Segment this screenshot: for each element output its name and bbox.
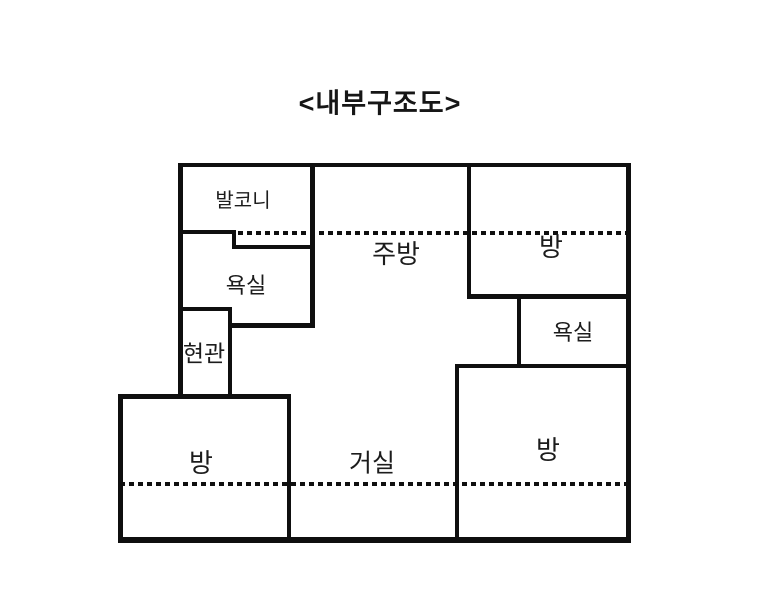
wall-outer-bottom [118,537,631,543]
wall-balcony-bottom-left [178,230,236,234]
room-label-entrance: 현관 [183,343,225,366]
wall-room-br-left [455,364,459,543]
diagram-title: <내부구조도> [299,82,462,121]
wall-bathroom-left-bottom [228,323,314,328]
dotted-line-top [238,231,626,235]
wall-room-bl-right [287,394,291,543]
wall-room-bl-top [118,394,291,399]
wall-outer-top [178,163,631,167]
wall-outer-right [626,163,631,543]
wall-room-tr-bottom [467,294,631,299]
wall-left-section-divider [310,163,315,328]
room-label-room-bottom-left: 방 [189,450,213,476]
wall-entrance-top [180,307,230,311]
room-label-room-top-right: 방 [539,234,563,260]
room-label-bathroom-right: 욕실 [553,322,593,344]
wall-room-br-top [455,364,631,368]
room-label-bathroom-left: 욕실 [226,275,266,297]
wall-bathroom-right-left [517,294,521,368]
wall-entrance-right [228,307,232,399]
room-label-balcony: 발코니 [215,191,270,211]
dotted-line-bottom [120,482,627,486]
room-label-living-room: 거실 [349,452,395,477]
wall-balcony-bottom-right [232,245,314,249]
room-label-room-bottom-right: 방 [536,437,560,463]
room-label-kitchen: 주방 [372,241,420,267]
floor-plan: <내부구조도> 발코니 욕실 현관 주방 방 욕실 방 거실 방 [0,0,768,600]
wall-room-bl-left [118,394,123,543]
